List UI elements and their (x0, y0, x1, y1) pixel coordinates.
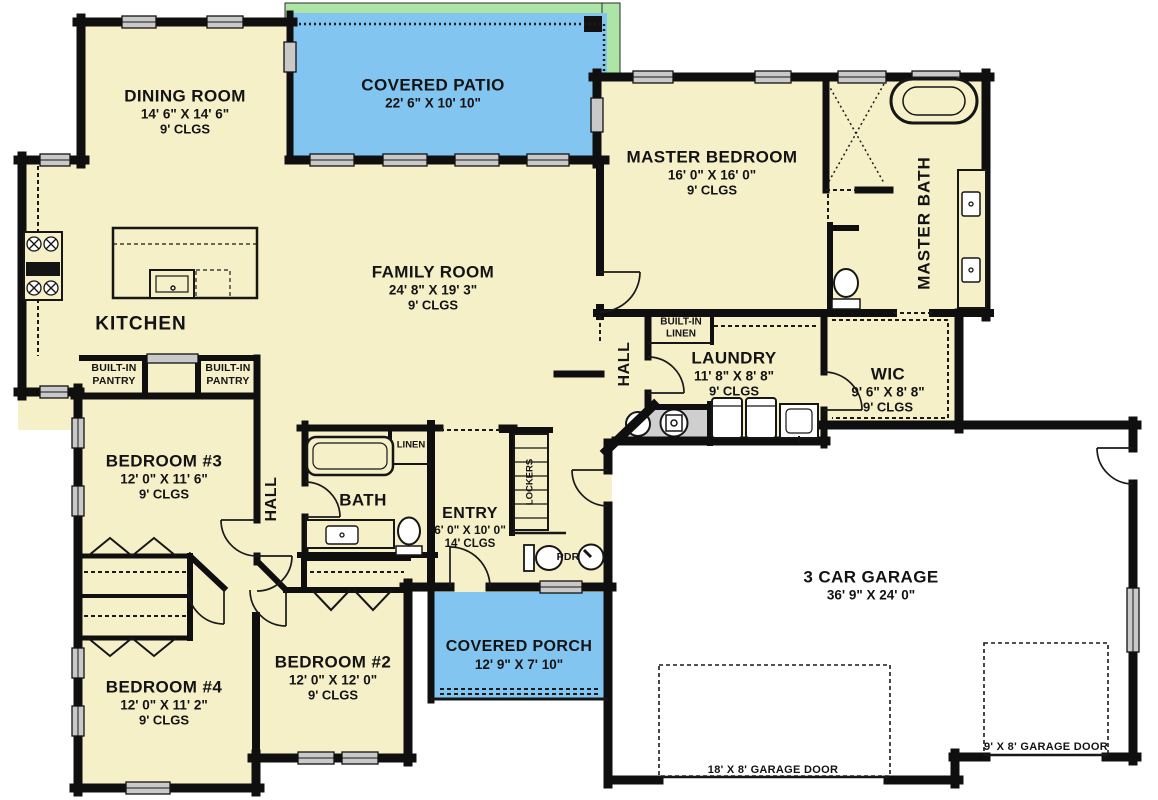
label-pantry-right: BUILT-IN PANTRY (205, 363, 250, 388)
garage-door-small-outline (984, 643, 1108, 755)
laundry-appliances (712, 398, 818, 442)
room-label-bedroom2: BEDROOM #2 12' 0" X 12' 0" 9' CLGS (275, 653, 391, 704)
room-label-porch: COVERED PORCH 12' 9" X 7' 10" (446, 638, 593, 672)
room-label-bedroom3: BEDROOM #3 12' 0" X 11' 6" 9' CLGS (106, 452, 222, 503)
room-label-bedroom4: BEDROOM #4 12' 0" X 11' 2" 9' CLGS (106, 678, 222, 729)
bath-toilet (398, 518, 420, 545)
room-label-master-bedroom: MASTER BEDROOM 16' 0" X 16' 0" 9' CLGS (627, 148, 798, 199)
room-label-family: FAMILY ROOM 24' 8" X 19' 3" 9' CLGS (372, 263, 494, 314)
label-hall-master: HALL (616, 341, 634, 386)
room-label-kitchen: KITCHEN (95, 313, 186, 334)
room-label-garage: 3 CAR GARAGE 36' 9" X 24' 0" (803, 567, 938, 602)
label-pantry-left: BUILT-IN PANTRY (91, 363, 136, 388)
label-linen: LINEN (397, 441, 426, 452)
room-label-master-bath: MASTER BATH (914, 156, 933, 289)
master-toilet (834, 269, 858, 297)
garage-doors (659, 643, 1108, 777)
master-vanity (958, 170, 986, 308)
room-label-wic: WIC 9' 6" X 8' 8" 9' CLGS (851, 365, 924, 416)
room-label-entry: ENTRY 6' 0" X 10' 0" 14' CLGS (434, 505, 506, 551)
label-garage-door-large: 18' X 8' GARAGE DOOR (708, 764, 838, 776)
label-garage-door-small: 9' X 8' GARAGE DOOR (984, 741, 1108, 753)
label-lockers: LOCKERS (526, 459, 537, 505)
room-label-bath: BATH (339, 490, 387, 509)
room-label-laundry: LAUNDRY 11' 8" X 8' 8" 9' CLGS (691, 349, 776, 400)
label-hall-bedroom: HALL (263, 476, 281, 521)
label-pdr: PDR (557, 552, 580, 564)
garage-door-large-outline (659, 665, 890, 776)
room-label-dining: DINING ROOM 14' 6" X 14' 6" 9' CLGS (124, 87, 246, 138)
floor-plan: DINING ROOM 14' 6" X 14' 6" 9' CLGS COVE… (0, 0, 1158, 800)
kitchen-island (113, 228, 257, 298)
garage-side-door (1097, 448, 1133, 484)
range (24, 232, 62, 300)
label-built-in-linen: BUILT-IN LINEN (660, 316, 701, 339)
room-label-patio: COVERED PATIO 22' 6" X 10' 10" (361, 75, 504, 110)
